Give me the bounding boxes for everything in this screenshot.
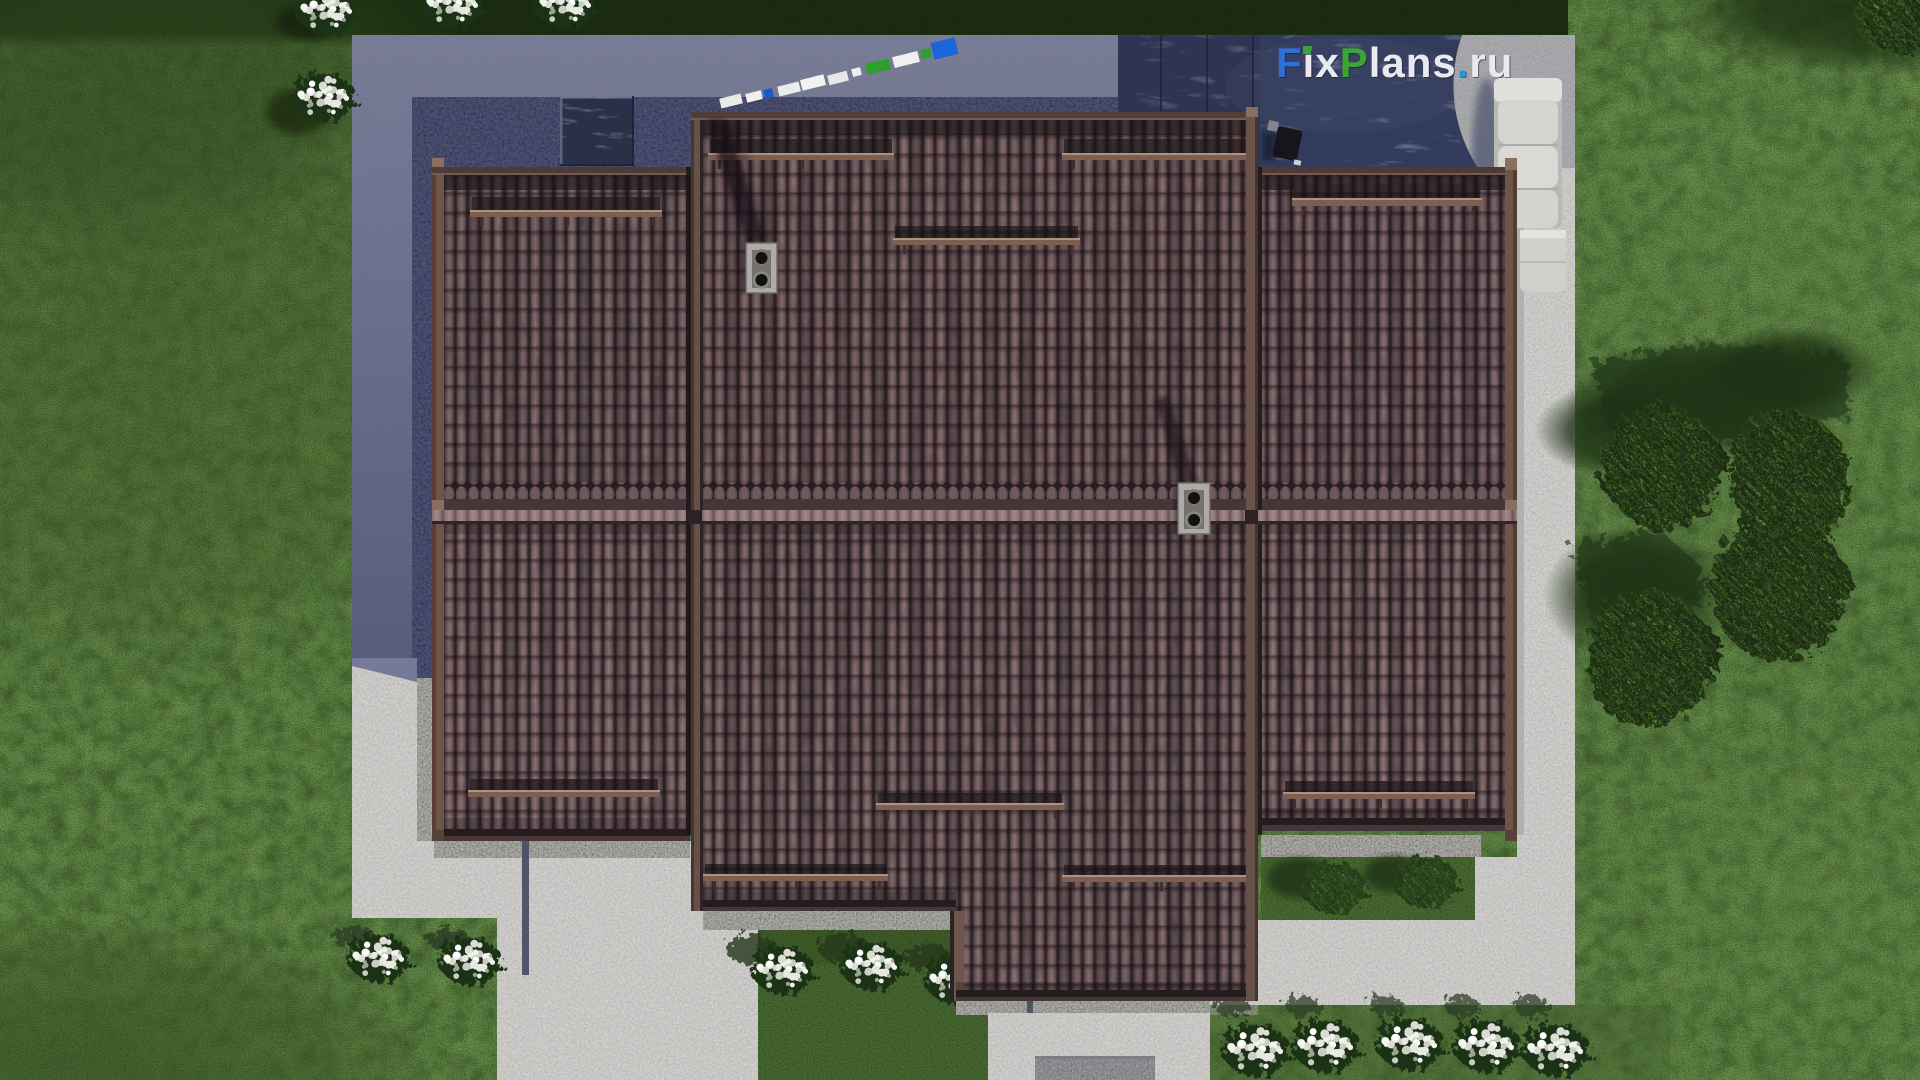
svg-text:FixPlans.ru: FixPlans.ru bbox=[1276, 39, 1513, 86]
